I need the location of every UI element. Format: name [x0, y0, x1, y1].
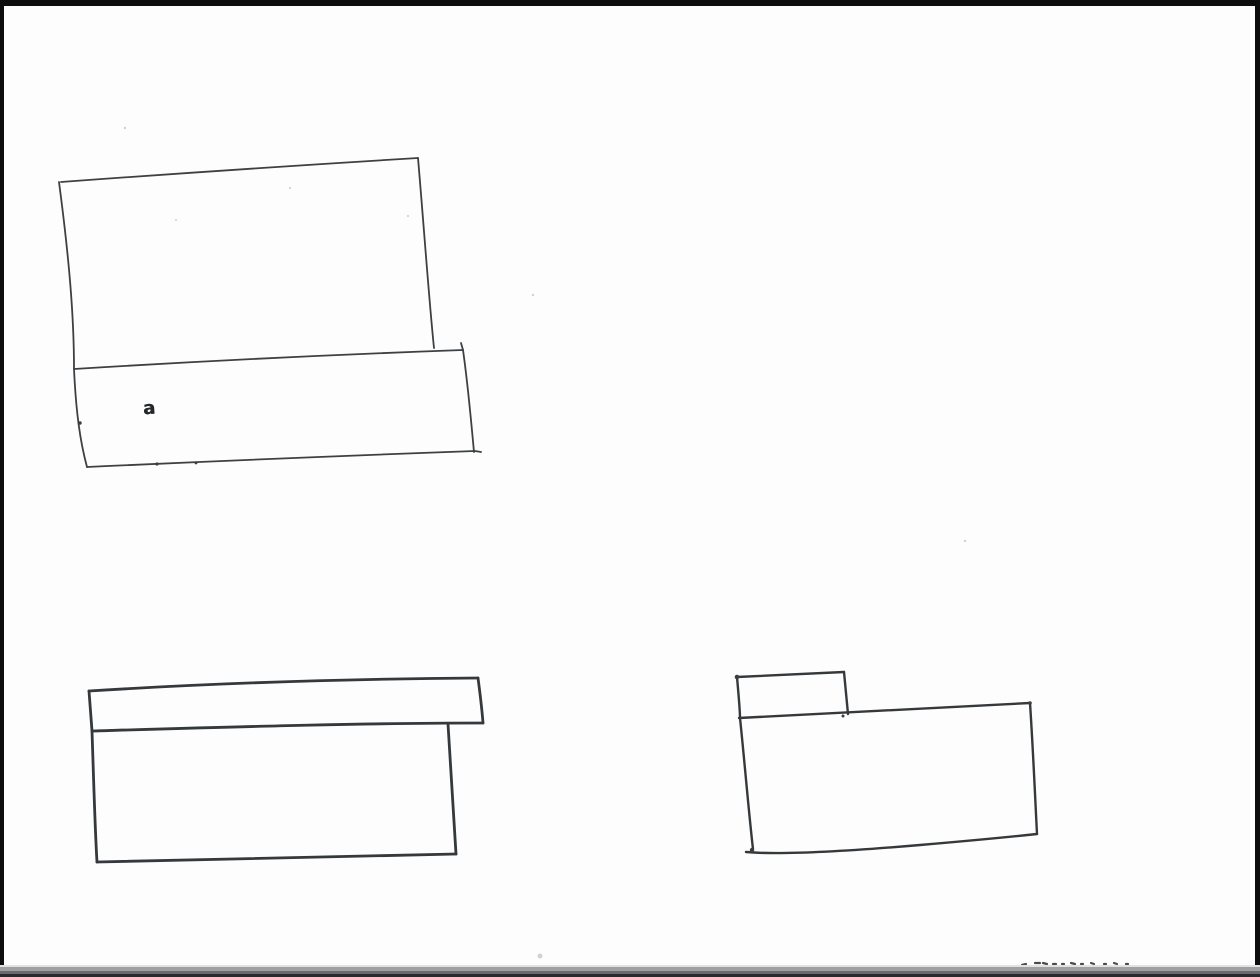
sketch-canvas [0, 0, 1260, 977]
scan-border-top [0, 0, 1260, 6]
scan-border-left [0, 0, 4, 965]
scan-noise-specks [124, 127, 966, 959]
pen-rest-dots [78, 421, 1031, 852]
handwritten-letter-a: a [142, 400, 155, 419]
tabbed-box-sketch-bottom-right [737, 672, 1037, 853]
scan-border-right [1255, 0, 1260, 965]
lidded-box-sketch-bottom-left [89, 678, 483, 862]
scan-border-bottom [0, 965, 1260, 977]
scanned-sketch-page: a [0, 0, 1260, 977]
open-box-sketch-top-left [59, 158, 481, 467]
